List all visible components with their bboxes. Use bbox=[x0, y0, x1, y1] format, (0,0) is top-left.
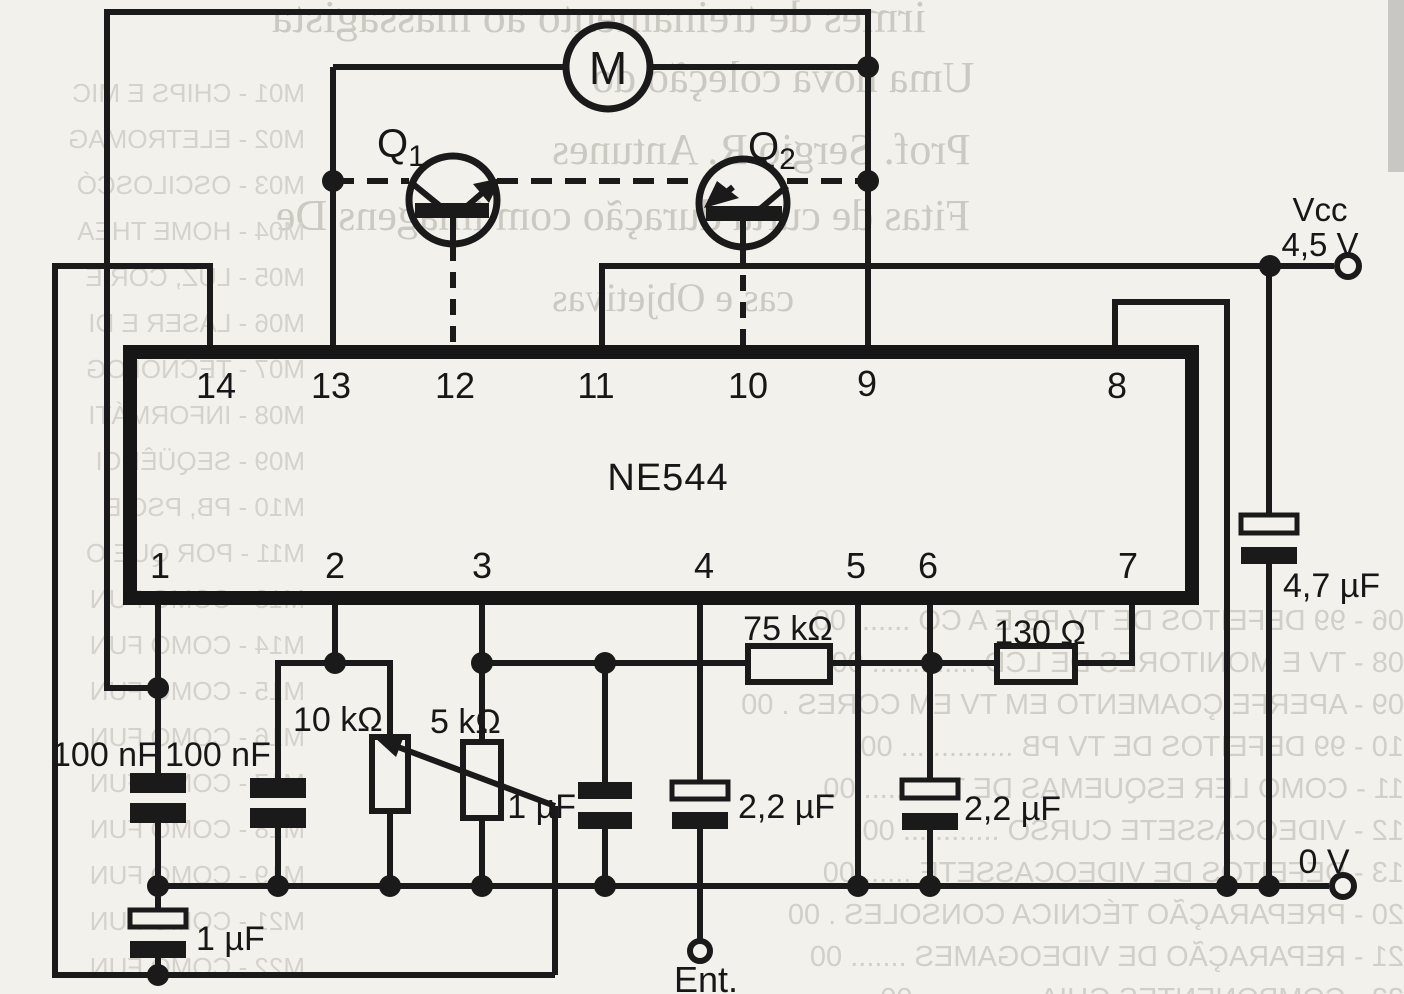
motor: M bbox=[566, 25, 650, 109]
vcc-label: Vcc bbox=[1292, 191, 1347, 228]
capacitor-4u7: 4,7 µF bbox=[1241, 515, 1380, 605]
resistor-130: 130 Ω bbox=[994, 614, 1086, 682]
resistor-75k-label: 75 kΩ bbox=[743, 610, 833, 648]
pin-label-9: 9 bbox=[857, 363, 877, 404]
pin-label-12: 12 bbox=[435, 365, 475, 406]
capacitor-1uf-mid: 1 µF bbox=[507, 782, 632, 829]
capacitor-2u2-right-label: 2,2 µF bbox=[964, 790, 1061, 828]
capacitor-100nf-2: 100 nF bbox=[165, 736, 306, 828]
transistor-q2: Q2 bbox=[699, 125, 796, 351]
pin-label-1: 1 bbox=[150, 545, 170, 586]
pin-label-5: 5 bbox=[846, 545, 866, 586]
capacitor-2u2-input-label: 2,2 µF bbox=[738, 788, 835, 826]
ic-ne544: NE544 14 13 12 11 10 9 8 1 2 3 4 5 6 7 bbox=[130, 352, 1192, 598]
pin-label-8: 8 bbox=[1107, 365, 1127, 406]
pin-label-14: 14 bbox=[196, 365, 236, 406]
pin-label-7: 7 bbox=[1118, 545, 1138, 586]
capacitor-1uf-left-label: 1 µF bbox=[196, 920, 265, 958]
input-terminal-ent: Ent. bbox=[674, 941, 738, 994]
svg-text:Q2: Q2 bbox=[748, 125, 796, 176]
motor-label: M bbox=[589, 42, 627, 94]
circuit-schematic: M Q1 Q2 bbox=[0, 0, 1404, 994]
svg-text:Q1: Q1 bbox=[377, 122, 425, 173]
scanned-schematic-page: irmes de treinamento ao massagista Uma n… bbox=[0, 0, 1404, 994]
resistor-130-label: 130 Ω bbox=[994, 614, 1086, 652]
pin-label-13: 13 bbox=[311, 365, 351, 406]
capacitor-1uf-mid-label: 1 µF bbox=[507, 788, 576, 826]
resistor-75k: 75 kΩ bbox=[743, 610, 833, 682]
pin-label-3: 3 bbox=[472, 545, 492, 586]
capacitor-2u2-input: 2,2 µF bbox=[672, 782, 835, 829]
capacitor-100nf-1-label: 100 nF bbox=[52, 736, 158, 774]
q2-emitter-arrow bbox=[704, 181, 739, 208]
vcc-value: 4,5 V bbox=[1281, 226, 1358, 263]
pot-wiper-arrow bbox=[374, 736, 404, 757]
q2-label: Q bbox=[748, 125, 779, 169]
pin-label-6: 6 bbox=[918, 545, 938, 586]
ic-label: NE544 bbox=[607, 457, 728, 499]
capacitor-4u7-label: 4,7 µF bbox=[1283, 567, 1380, 605]
pin-label-4: 4 bbox=[694, 545, 714, 586]
pin-label-11: 11 bbox=[577, 365, 614, 406]
capacitor-1uf-left: 1 µF bbox=[130, 910, 265, 958]
pin-label-10: 10 bbox=[728, 365, 768, 406]
input-label: Ent. bbox=[674, 959, 738, 994]
potentiometer-5k-label: 5 kΩ bbox=[430, 703, 501, 741]
transistor-q1: Q1 bbox=[377, 122, 501, 351]
q1-label: Q bbox=[377, 122, 408, 166]
resistor-10k-label: 10 kΩ bbox=[293, 701, 383, 739]
pin-label-2: 2 bbox=[325, 545, 345, 586]
capacitor-100nf-2-label: 100 nF bbox=[165, 736, 271, 774]
gnd-label: 0 V bbox=[1298, 843, 1349, 881]
capacitor-2u2-right: 2,2 µF bbox=[902, 780, 1061, 830]
